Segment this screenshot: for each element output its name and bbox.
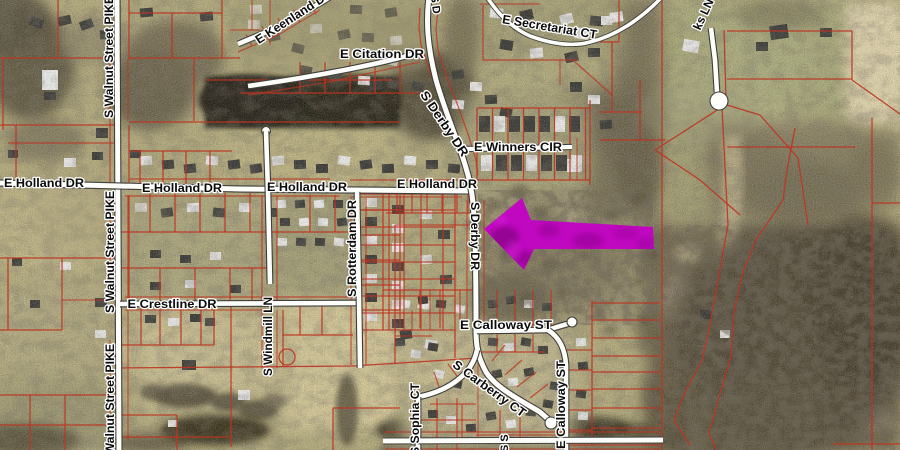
svg-text:S Derby DR: S Derby DR [468,202,482,270]
svg-text:E Holland DR: E Holland DR [142,181,222,195]
svg-text:S Walnut Street PIKE: S Walnut Street PIKE [103,344,117,450]
svg-text:E Citation DR: E Citation DR [340,47,424,61]
svg-text:S Walnut Street PIKE: S Walnut Street PIKE [102,0,116,118]
svg-text:E Holland DR: E Holland DR [397,177,477,191]
svg-text:E Calloway ST: E Calloway ST [554,361,568,449]
svg-text:E Calloway ST: E Calloway ST [460,318,552,332]
svg-text:S Rotterdam DR: S Rotterdam DR [345,200,359,297]
svg-text:E Holland DR: E Holland DR [267,180,347,194]
svg-text:S Walnut Street PIKE: S Walnut Street PIKE [103,191,117,313]
svg-text:E Crestline DR: E Crestline DR [128,297,217,311]
svg-text:E Winners CIR: E Winners CIR [474,140,562,154]
svg-text:S Sophia CT: S Sophia CT [408,383,422,450]
svg-text:S Windmill LN: S Windmill LN [261,297,275,376]
svg-text:S S: S S [499,434,511,450]
svg-text:E Holland DR: E Holland DR [4,176,84,190]
